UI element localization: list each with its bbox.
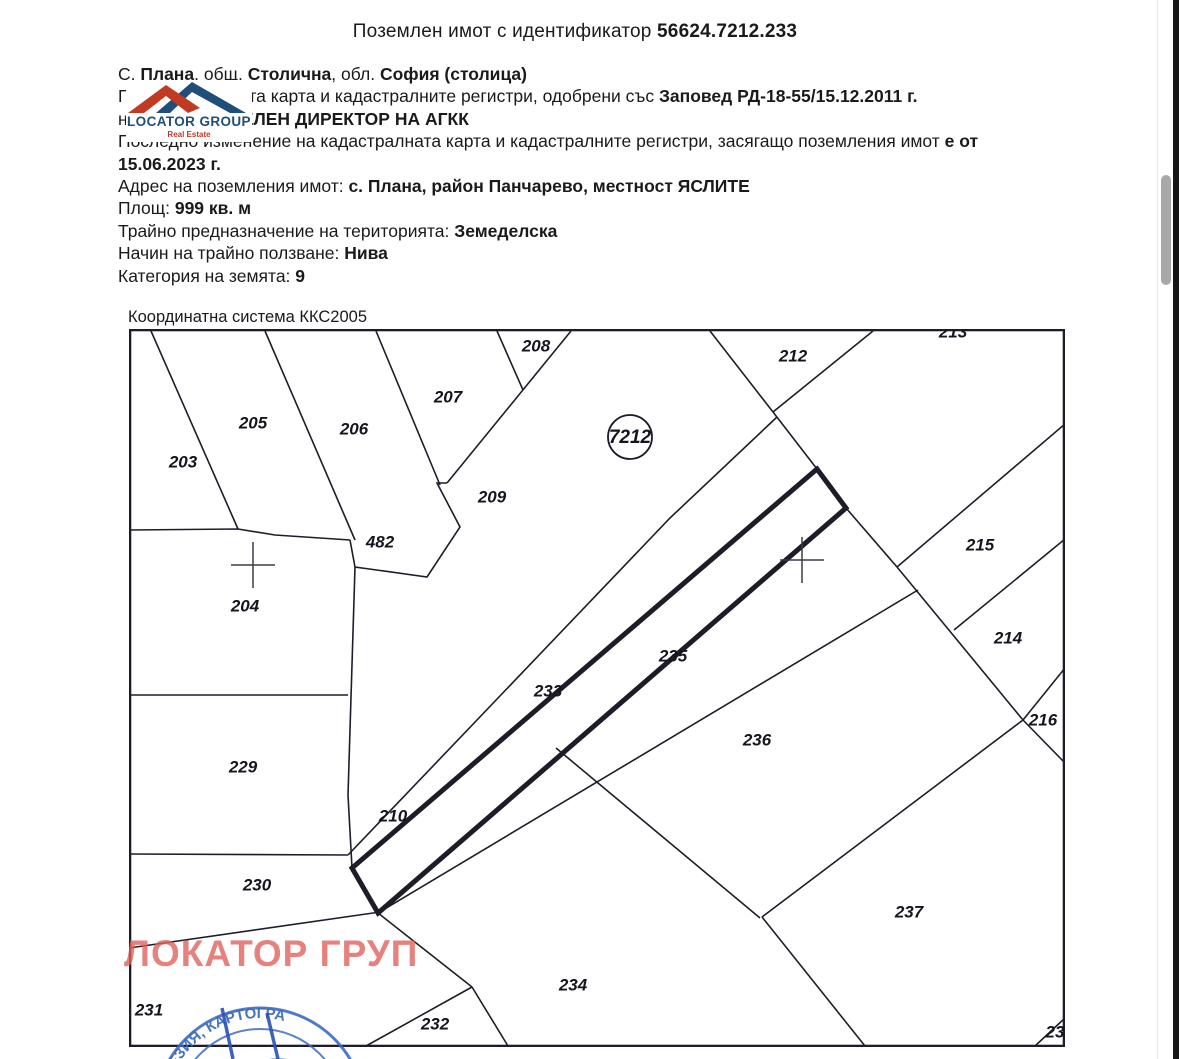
info-text: София (столица) xyxy=(380,64,527,84)
subject-parcel-outline xyxy=(352,469,846,913)
parcel-boundary-line xyxy=(348,417,777,855)
info-line: С. Плана, общ. Столична, обл. София (сто… xyxy=(118,63,1098,85)
info-text: 9 xyxy=(295,266,305,286)
parcel-boundary-line xyxy=(762,917,865,1046)
parcel-label: 229 xyxy=(228,757,258,776)
page-title: Поземлен имот с идентификатор 56624.7212… xyxy=(0,21,1150,43)
parcel-label: 233 xyxy=(533,681,563,700)
info-line: Трайно предназначение на територията: Зе… xyxy=(118,220,1098,242)
info-text: Заповед РД-18-55/15.12.2011 г. xyxy=(659,86,918,106)
blue-stamp: ОДЕЗИЯ, КАРТОГРА xyxy=(120,995,450,1059)
parcel-boundary-line xyxy=(447,331,571,483)
parcel-boundary-line xyxy=(846,508,1023,720)
parcel-identifier: 56624.7212.233 xyxy=(657,21,797,42)
parcel-label: 482 xyxy=(365,532,395,551)
parcel-label: 235 xyxy=(658,646,688,665)
parcel-label: 236 xyxy=(742,730,772,749)
parcel-boundary-line xyxy=(129,529,350,540)
locator-group-logo: LOCATOR GROUP Real Estate xyxy=(126,80,252,142)
parcel-label: 208 xyxy=(521,336,551,355)
info-text: с. Плана, район Панчарево, местност ЯСЛИ… xyxy=(348,176,749,196)
coordinate-system-label: Координатна система ККС2005 xyxy=(128,308,367,327)
info-line: 15.06.2023 г. xyxy=(118,153,1098,175)
mountains-logo-icon xyxy=(126,80,252,114)
parcel-label: 234 xyxy=(558,975,588,994)
info-line: Категория на земята: 9 xyxy=(118,265,1098,287)
parcel-label: 237 xyxy=(894,902,925,921)
logo-subtext: Real Estate xyxy=(126,130,252,139)
cadastral-region-label: 7212 xyxy=(609,427,652,448)
info-text: Начин на трайно ползване: xyxy=(118,243,344,263)
info-line: Адрес на поземления имот: с. Плана, райо… xyxy=(118,175,1098,197)
info-line: на ИЗПЪЛНИТЕЛЕН ДИРЕКТОР НА АГКК xyxy=(118,108,1098,130)
parcel-boundary-line xyxy=(129,854,348,855)
info-text: Трайно предназначение на територията: xyxy=(118,221,454,241)
watermark-text: ЛОКАТОР ГРУП xyxy=(124,933,418,975)
parcel-label: 203 xyxy=(168,452,198,471)
info-text: Столична xyxy=(248,64,332,84)
info-text: е от xyxy=(945,131,978,151)
parcel-boundary-line xyxy=(151,331,238,529)
parcel-label: 204 xyxy=(230,596,260,615)
info-text: , обл. xyxy=(331,64,380,84)
title-prefix: Поземлен имот с идентификатор xyxy=(353,21,657,42)
parcel-label: 207 xyxy=(433,387,464,406)
info-line: Площ: 999 кв. м xyxy=(118,197,1098,219)
scrollbar-track-line xyxy=(1157,0,1158,1059)
parcel-label: 210 xyxy=(378,806,408,825)
parcel-label: 216 xyxy=(1028,710,1058,729)
parcel-label: 23 xyxy=(1045,1022,1065,1041)
info-line: Начин на трайно ползване: Нива xyxy=(118,242,1098,264)
parcel-boundary-line xyxy=(378,590,918,913)
parcel-boundary-line xyxy=(376,331,440,485)
window-edge-bar xyxy=(1173,0,1179,1059)
grid-cross-icon xyxy=(780,537,824,583)
parcel-label: 212 xyxy=(778,346,808,365)
info-text: 15.06.2023 г. xyxy=(118,154,221,174)
logo-text: LOCATOR GROUP xyxy=(126,114,252,129)
parcel-boundary-line xyxy=(472,987,508,1046)
info-text: Нива xyxy=(344,243,388,263)
parcel-boundary-line xyxy=(762,720,1023,917)
parcel-label: 206 xyxy=(339,419,369,438)
parcel-info-block: С. Плана, общ. Столична, обл. София (сто… xyxy=(118,63,1098,287)
parcel-label: 213 xyxy=(938,329,968,341)
parcel-label: 205 xyxy=(238,413,268,432)
parcel-label: 209 xyxy=(477,487,507,506)
info-line: Последно изменение на кадастралната карт… xyxy=(118,130,1098,152)
info-text: Площ: xyxy=(118,198,175,218)
info-line: По кадастралната карта и кадастралните р… xyxy=(118,85,1098,107)
parcel-boundary-line xyxy=(350,483,460,577)
info-text: Категория на земята: xyxy=(118,266,295,286)
parcel-boundary-line xyxy=(348,567,355,868)
parcel-label: 230 xyxy=(242,875,272,894)
parcel-label: 215 xyxy=(965,535,995,554)
parcel-boundary-line xyxy=(497,331,523,390)
parcel-boundary-line xyxy=(556,748,760,918)
info-text: Адрес на поземления имот: xyxy=(118,176,348,196)
parcel-label: 214 xyxy=(993,628,1023,647)
info-text: Земеделска xyxy=(454,221,557,241)
grid-cross-icon xyxy=(231,542,275,588)
parcel-boundary-line xyxy=(773,331,873,412)
info-text: 999 кв. м xyxy=(175,198,251,218)
scrollbar-thumb[interactable] xyxy=(1161,175,1171,285)
